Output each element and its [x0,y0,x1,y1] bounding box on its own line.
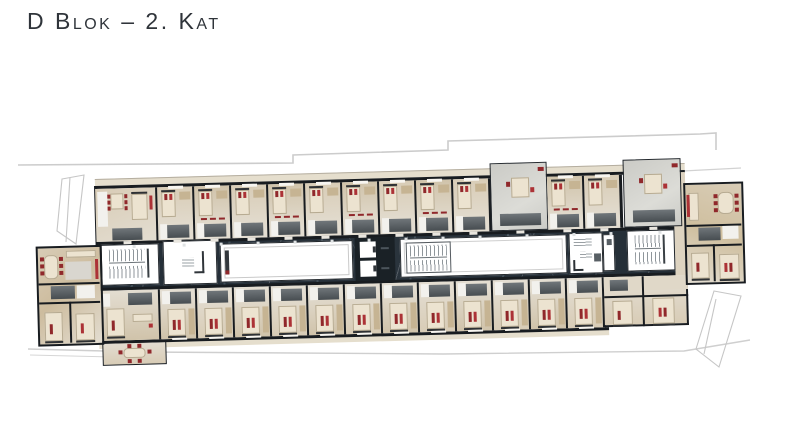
room-door-gap [124,241,132,244]
wardrobe [179,191,190,199]
room-door-gap [432,233,440,236]
window-gap [357,332,372,335]
red-cushion [618,311,621,320]
red-chair [118,350,122,354]
stair-core-east [626,229,675,271]
red-cushion [149,323,153,327]
bathroom-pod [392,285,413,298]
floor-plan [95,170,689,346]
door-leaf [256,241,259,244]
red-runner-dashed [554,207,578,210]
bathroom-pod [355,286,376,299]
bathroom-pod [315,220,337,234]
bathroom-pod [128,292,152,305]
red-chair [713,194,717,198]
red-chair [124,200,127,204]
stair-core-west [101,243,160,286]
door-leaf [182,243,185,246]
elevator-bank [355,237,396,281]
guest-room-south [493,279,531,330]
elevator-door-mark [373,265,376,271]
room-door-gap [173,240,181,243]
red-cushion [363,315,366,325]
sofa [66,250,96,258]
bed [691,252,710,278]
room-door-gap [563,229,571,232]
window-gap [283,334,298,337]
guest-room-south [419,281,457,332]
bed [500,300,519,327]
door-leaf [219,242,222,245]
wardrobe [299,305,306,331]
wardrobe [225,307,232,333]
guest-room-south [567,277,605,328]
west-end-apartment [36,245,105,347]
bed [612,301,633,326]
window-gap [542,327,557,330]
bed-pillow-red [280,190,283,196]
bed-pillow-red [206,192,209,198]
red-chair [40,264,44,268]
corridor-lobby-room [163,240,218,285]
red-cushion [112,321,115,331]
west-atrium-void [220,240,354,283]
bed-headboard [653,323,675,325]
red-chair [714,201,718,205]
stair-run-lower [635,252,661,265]
red-cushion [724,263,727,272]
wardrobe [364,186,375,194]
guest-room-south [530,278,568,329]
door-leaf [609,232,612,235]
dining-table [44,255,59,279]
wardrobe [336,304,343,330]
label-text-lines [580,252,592,258]
lounge-table [510,177,529,197]
bathroom-pod [500,213,541,226]
equipment-mark [607,239,612,245]
bathroom-pod [241,222,263,236]
elevator-door-mark [373,246,376,252]
bed-pillow-red [169,193,172,199]
elevator-cabin [360,260,376,276]
wardrobe [484,300,491,326]
red-cushion [326,316,329,326]
door-leaf [330,239,333,242]
bed [463,301,482,328]
guest-room-south [345,283,383,334]
bed [426,302,445,329]
wardrobe [401,185,412,193]
sofa [688,193,699,221]
guest-room-north [194,185,232,239]
wardrobe [475,183,486,191]
site-sketch-west [57,175,84,244]
red-cushion [149,195,152,209]
door-leaf [572,233,575,236]
guest-room-south [456,280,494,331]
guest-room-south [308,284,346,335]
bed [389,303,408,330]
wardrobe [262,306,269,332]
stair-landing-line [109,262,145,264]
red-seat [225,270,229,274]
bed [537,299,556,326]
bathroom-pod [594,212,616,226]
bathroom-pod [633,209,675,222]
southwest-garden-bay [102,341,167,366]
east-end-apartment [683,181,746,285]
red-chair [108,206,111,210]
bathroom-pod [112,227,142,240]
central-void [400,234,568,278]
wardrobe [558,298,565,324]
bed [131,193,148,219]
wardrobe [253,189,264,197]
dining-table [123,348,145,359]
equipment-mark [594,253,601,261]
red-chair [663,184,667,189]
wardrobe [216,190,227,198]
bed-pillow-red [559,183,562,189]
bathroom-pod [389,218,411,232]
red-chair [127,344,131,348]
bathroom-pod [51,286,75,300]
bathroom-pod [318,287,339,300]
red-cushion [506,311,509,321]
red-chair [506,182,510,187]
northwest-corner-unit [95,187,158,242]
bed [315,305,334,332]
sofa [132,313,152,322]
bed-pillow-red [317,189,320,195]
bed-headboard [76,340,95,342]
stair-run-upper [410,245,447,257]
window-gap [595,174,610,177]
red-chair [147,350,151,354]
window-gap [242,184,257,187]
room-door-gap [284,237,292,240]
room-door-gap [600,228,608,231]
window-gap [468,329,483,332]
bathroom-pod [281,288,302,301]
room-door-gap [247,238,255,241]
window-gap [246,335,261,338]
window-gap [172,337,187,340]
room-door-gap [321,236,329,239]
bathroom-pod [278,221,300,235]
wardrobe [521,299,528,325]
bathroom-pod [610,280,628,291]
desk-mark [194,271,204,273]
bathroom-pod [207,290,228,303]
bed-pillow-red [238,192,241,198]
bed-headboard [613,324,633,326]
red-cushion [252,318,255,328]
red-cushion [511,311,514,321]
red-runner-dashed [275,215,299,218]
red-cushion [210,319,213,329]
red-chair [714,208,718,212]
red-chair [128,359,132,363]
red-runner-dashed [349,213,373,216]
elevator-cabin [360,241,376,257]
window-gap [390,180,405,183]
window-gap [427,179,442,182]
red-cushion [400,314,403,324]
stair-landing-line [410,257,447,259]
bathroom-pod [244,289,265,302]
red-chair [124,194,127,198]
door-leaf [293,240,296,243]
stair-run-upper [109,249,145,262]
southwest-corner-unit [98,289,161,341]
window-gap [320,333,335,336]
window-gap [505,328,520,331]
door-leaf [133,244,136,247]
red-cushion [663,308,666,317]
guest-room-north [547,175,585,229]
southeast-apartment [604,275,689,327]
partition-wall [604,294,688,298]
red-cushion [289,317,292,327]
red-chair [735,208,739,212]
bathroom-pod [557,213,579,227]
wardrobe [447,301,454,327]
service-room [602,234,615,271]
bed-pillow-red [554,183,557,189]
door-leaf [478,235,481,238]
bathroom-pod [463,216,485,230]
bed [241,307,260,334]
partition-wall [69,302,72,343]
red-chair [639,178,643,183]
window-gap [209,336,224,339]
window-gap [431,330,446,333]
bed-pillow-red [423,187,426,193]
bathroom-pod [540,281,561,294]
window-gap [168,186,183,189]
terrace-suite [622,158,682,228]
guest-room-north [584,174,622,228]
bed [204,308,223,335]
bed-pillow-red [596,182,599,188]
room-door-gap [395,234,403,237]
red-cushion [548,310,551,320]
door-leaf [404,237,407,240]
rug [65,261,91,280]
site-sketch-east [696,291,741,367]
red-chair [138,359,142,363]
red-cushion [432,313,435,323]
bed-headboard [107,336,125,338]
guest-room-north [453,178,491,232]
guest-room-south [197,287,235,338]
red-cushion [321,316,324,326]
void-stair [406,241,452,273]
label-text-lines [182,257,194,266]
red-chair [734,194,738,198]
bed [167,309,186,336]
red-chair [530,187,534,192]
window-gap [558,175,573,178]
window-gap [579,326,594,329]
bed-headboard [45,341,63,343]
dining-table [717,192,734,214]
door-leaf [658,230,661,233]
red-chair [735,201,739,205]
bathroom-pod [577,280,598,293]
bathroom-pod [503,282,524,295]
window-gap [279,183,294,186]
stair-rail [147,249,150,278]
red-runner-dashed [201,217,225,220]
bed-headboard [720,279,740,281]
desk-mark [202,251,205,273]
wardrobe [188,308,195,334]
bed [352,304,371,331]
wardrobe [327,187,338,195]
red-cushion [95,259,99,279]
bed [75,313,95,341]
bathroom-pod [429,284,450,297]
room-door-gap [649,227,657,230]
guest-room-north [157,186,195,240]
site-boundary-line [683,168,741,171]
bed-pillow-red [386,188,389,194]
guest-room-north [416,179,454,233]
red-cushion [395,314,398,324]
window-gap [353,181,368,184]
floor-plan-sheet: D Blok – 2. Kat [0,0,800,425]
window-gap [205,185,220,188]
wardrobe [595,297,602,323]
bed-pillow-red [460,186,463,192]
bed-pillow-red [312,190,315,196]
bed-pillow-red [243,191,246,197]
bed-pillow-red [591,182,594,188]
stair-run-lower [109,266,145,279]
bathroom-pod [426,217,448,231]
bed-pillow-red [164,194,167,200]
room-door-gap [516,230,524,233]
bathroom-pod [167,224,189,238]
guest-room-north [305,182,343,236]
red-cushion [474,312,477,322]
stair-run-lower [410,260,447,272]
bed-pillow-red [428,186,431,192]
bathroom-pod [170,291,191,304]
wardrobe [410,302,417,328]
red-cushion [580,309,583,319]
bed [574,298,593,325]
red-cushion [215,319,218,329]
door-leaf [367,238,370,241]
bed [44,312,63,341]
red-cushion [284,317,287,327]
red-runner-dashed [423,211,447,214]
partition-wall [713,244,716,281]
bed-pillow-red [275,191,278,197]
guest-room-south [382,282,420,333]
red-chair [40,271,44,275]
bath-floor [77,285,95,298]
guest-room-north [342,181,380,235]
bed [278,306,297,333]
red-cushion [659,308,662,317]
guest-room-north [231,184,269,238]
site-boundary-line [18,133,716,165]
bed-pillow-red [349,189,352,195]
lounge-table [644,174,663,194]
red-cushion [585,309,588,319]
red-chair [59,264,63,268]
room-door-gap [358,235,366,238]
stair-run-upper [635,235,661,248]
bathroom-pod [698,227,720,241]
bathroom-pod [204,223,226,237]
red-chair [40,257,44,261]
equipment-mark [573,269,583,271]
red-cushion [178,320,181,330]
wardrobe [569,180,580,188]
red-chair [672,163,678,167]
guest-room-south [160,288,198,339]
room-door-gap [210,239,218,242]
red-chair [107,200,110,204]
red-chair [137,344,141,348]
red-chair [107,194,110,198]
red-cushion [50,324,53,334]
red-chair [59,271,63,275]
red-chair [59,257,63,261]
guest-room-south [271,285,309,336]
guest-room-south [234,286,272,337]
shaft-mark [381,247,389,249]
red-cushion [358,315,361,325]
label-text-lines [574,238,592,246]
window-gap [464,178,479,181]
red-cushion [247,318,250,328]
bed-pillow-red [354,188,357,194]
stair-landing-line [635,248,661,250]
door-leaf [525,234,528,237]
red-cushion [173,320,176,330]
red-cushion [543,310,546,320]
dining-table [110,193,123,209]
red-cushion [81,323,84,333]
bath-floor [722,226,738,239]
technical-room [568,232,603,274]
red-cushion [696,263,699,272]
bed-pillow-red [465,185,468,191]
red-chair [125,206,128,210]
wardrobe [606,179,617,187]
guest-room-north [268,183,306,237]
red-chair [538,167,544,171]
room-door-gap [469,232,477,235]
door-leaf [441,236,444,239]
wardrobe [373,303,380,329]
bed-pillow-red [201,193,204,199]
terrace-suite [490,162,549,232]
red-cushion [437,313,440,323]
bed-pillow-red [391,187,394,193]
red-cushion [729,263,732,272]
bed [106,308,125,336]
wardrobe [290,188,301,196]
bathroom-pod [352,219,374,233]
